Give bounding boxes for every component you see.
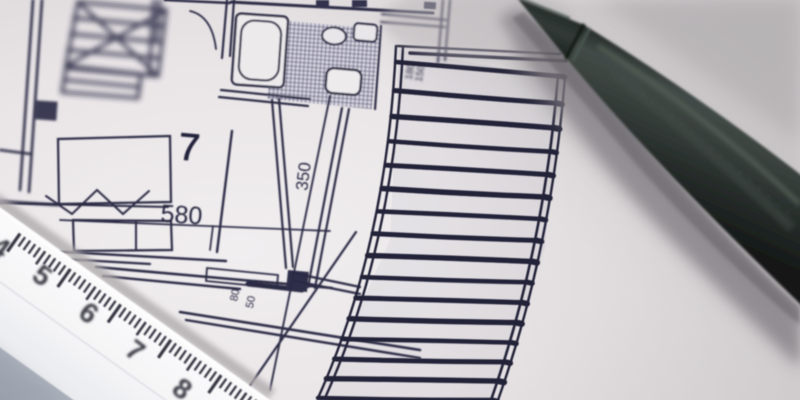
svg-text:580: 580: [160, 200, 204, 231]
svg-text:50: 50: [244, 295, 258, 309]
svg-text:7: 7: [177, 126, 202, 170]
svg-text:80: 80: [228, 288, 242, 302]
